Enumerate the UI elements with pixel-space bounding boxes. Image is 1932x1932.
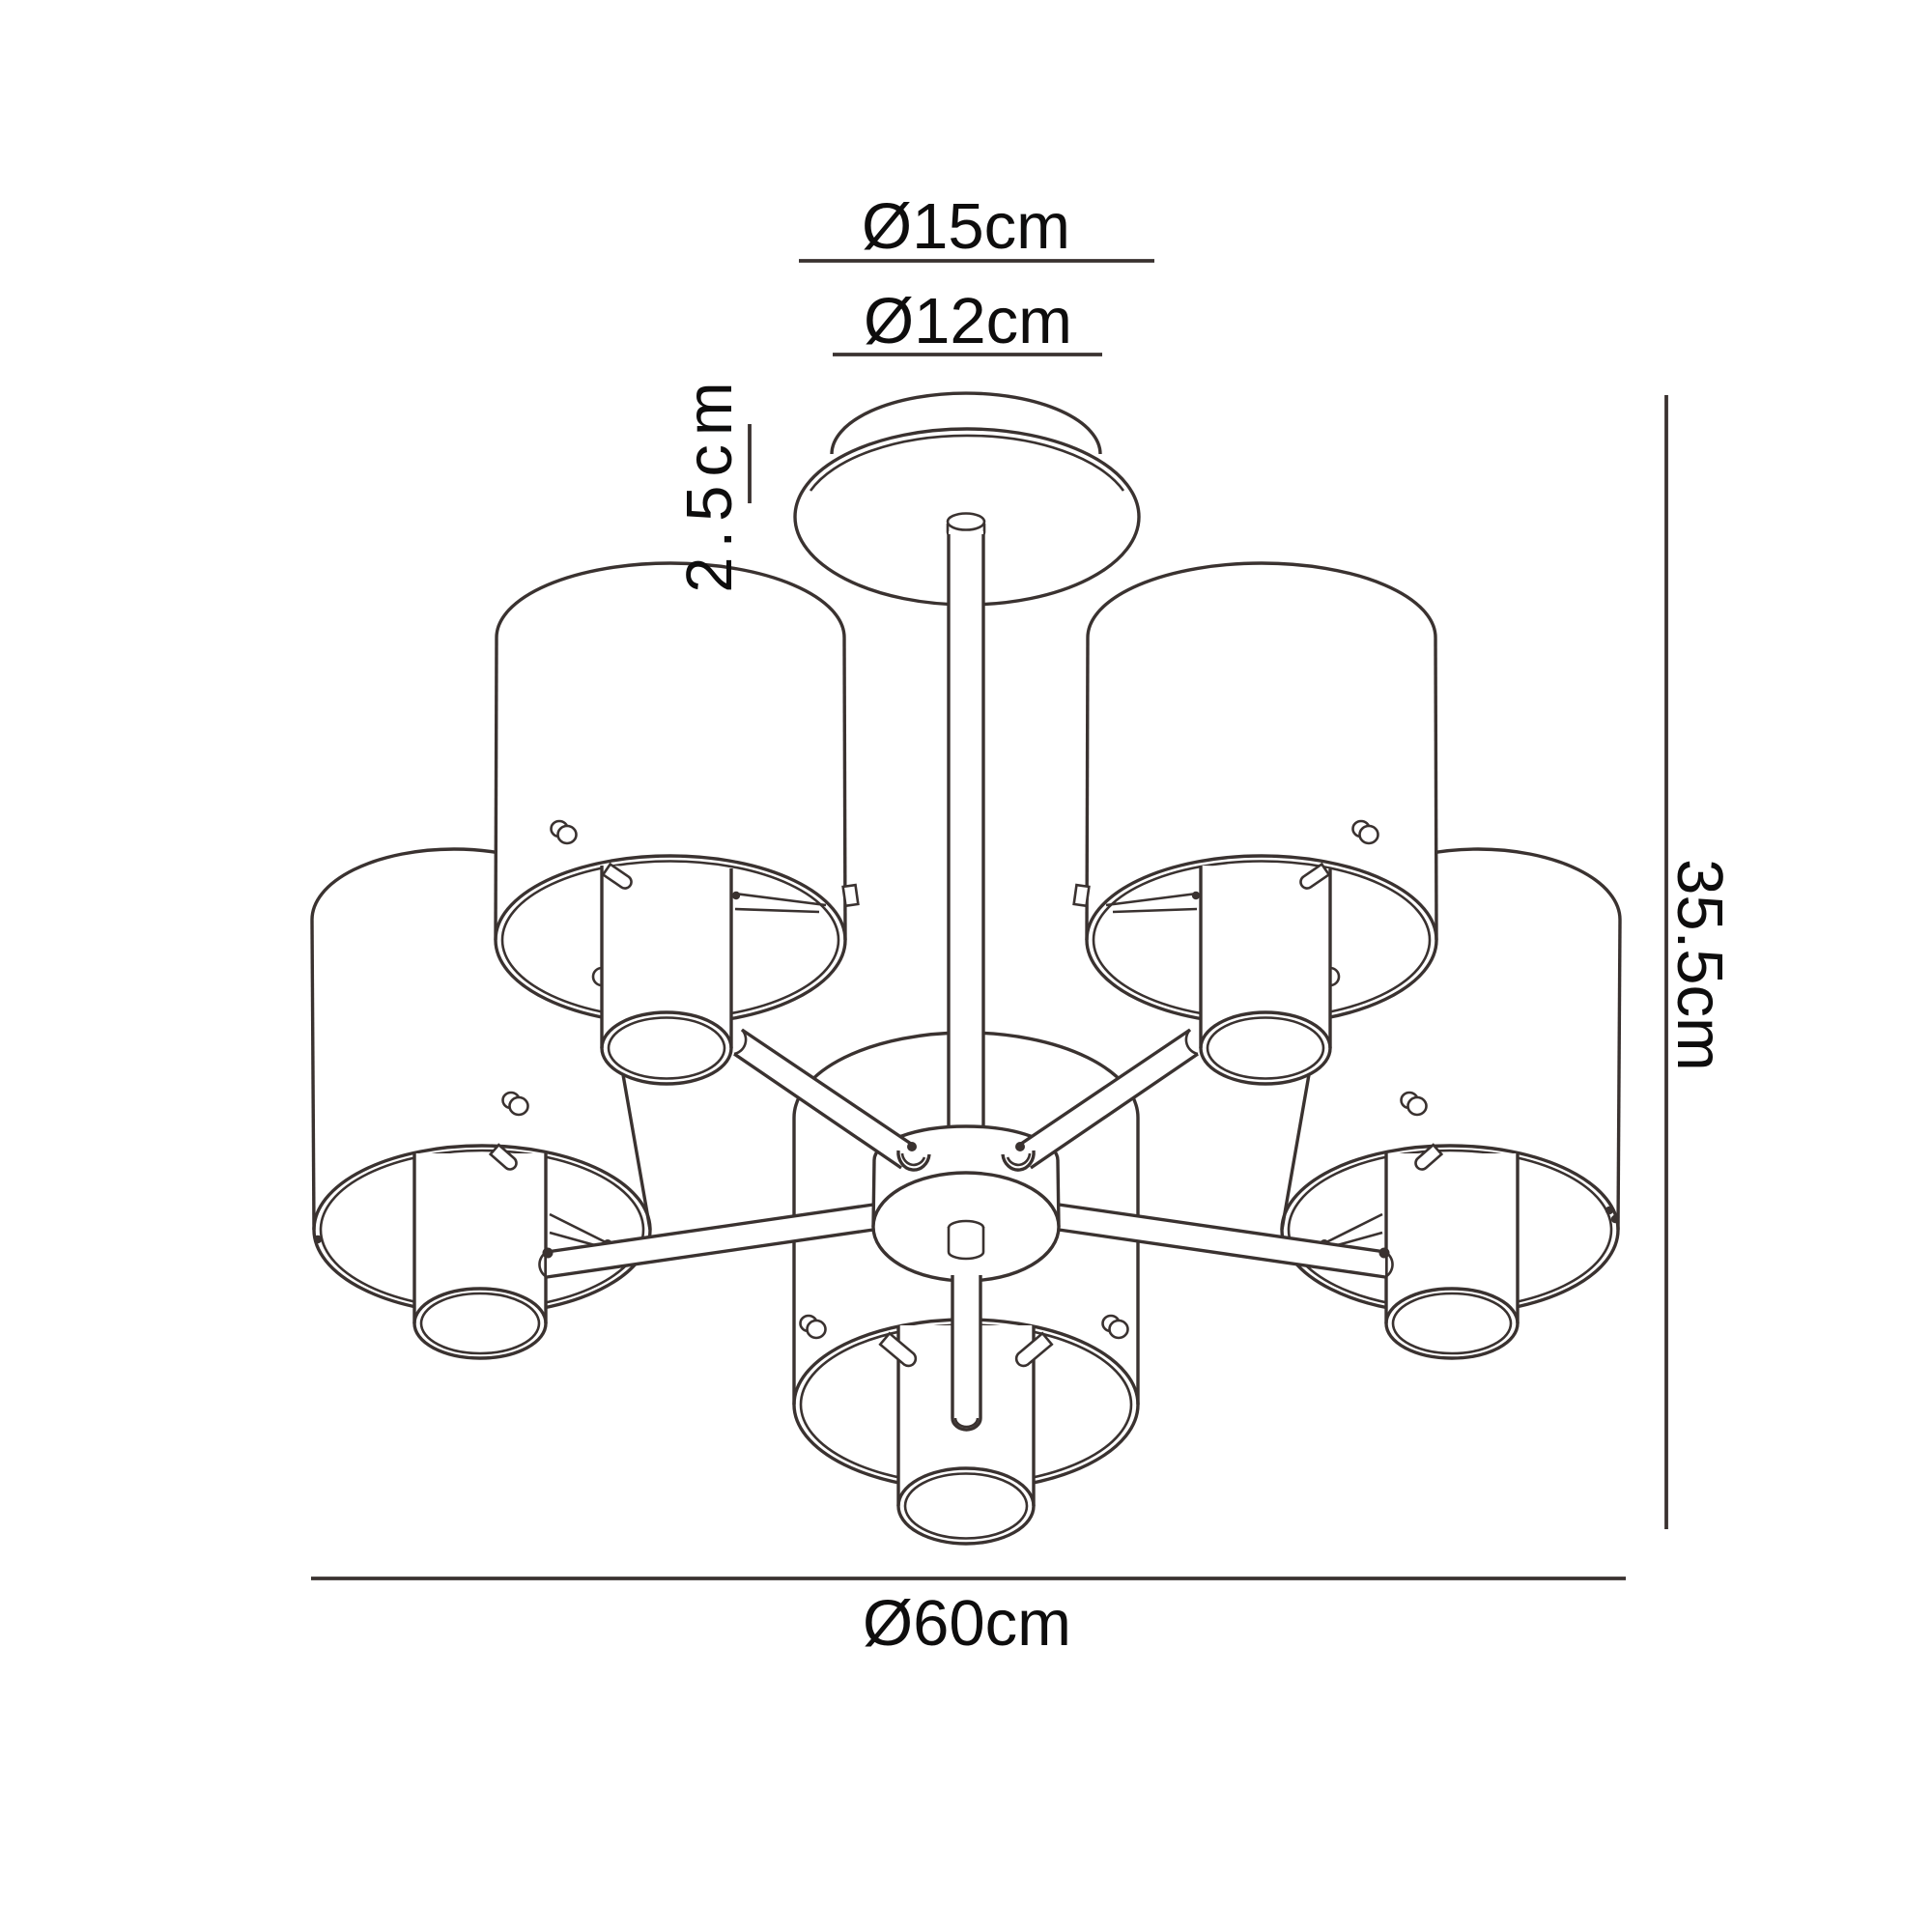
svg-text:2.5cm: 2.5cm <box>673 373 746 592</box>
svg-text:Ø60cm: Ø60cm <box>863 1587 1071 1660</box>
svg-text:Ø12cm: Ø12cm <box>864 285 1072 357</box>
svg-text:35.5cm: 35.5cm <box>1663 859 1736 1071</box>
svg-text:Ø15cm: Ø15cm <box>862 190 1070 263</box>
